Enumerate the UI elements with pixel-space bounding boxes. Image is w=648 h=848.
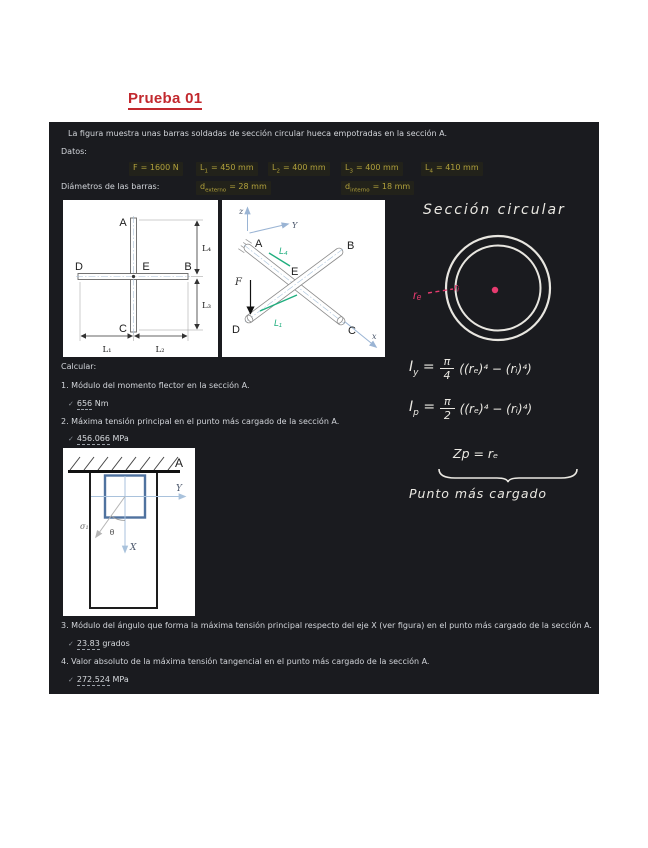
check-icon: ✓ — [68, 640, 74, 648]
answer-3: ✓23.83 grados — [68, 639, 130, 648]
problem-statement: La figura muestra unas barras soldadas d… — [68, 129, 447, 138]
inner-circle — [456, 246, 541, 331]
datos-label: Datos: — [61, 147, 87, 156]
iso-dim-l1: L₁ — [274, 318, 282, 328]
plan-dim-l2: L₂ — [155, 345, 164, 355]
calcular-label: Calcular: — [61, 362, 96, 371]
section-label-a: A — [175, 456, 183, 470]
bar-outline — [90, 471, 157, 608]
iso-axis-x: x — [372, 332, 377, 341]
notes-caption: Punto más cargado — [409, 486, 547, 501]
section-circle-sketch: rₑ rᵢ — [407, 228, 555, 350]
plan-bars — [76, 216, 190, 334]
theta-label: θ — [110, 527, 115, 537]
iso-label-a: A — [255, 238, 263, 250]
iso-label-f: F — [234, 277, 243, 288]
question-2: 2. Máxima tensión principal en el punto … — [61, 417, 339, 426]
dato-L4: L4= 410 mm — [421, 162, 483, 176]
plan-label-b: B — [184, 261, 191, 273]
question-1: 1. Módulo del momento flector en la secc… — [61, 381, 250, 390]
plan-dim-l3: L₃ — [202, 301, 211, 311]
formula-iy: Iy = π4 ((rₑ)⁴ − (rᵢ)⁴) — [409, 356, 532, 381]
iso-label-b: B — [347, 240, 354, 252]
question-4: 4. Valor absoluto de la máxima tensión t… — [61, 657, 429, 666]
diametros-label: Diámetros de las barras: — [61, 182, 159, 191]
problem-panel: La figura muestra unas barras soldadas d… — [49, 122, 599, 694]
y-axis-label: Y — [176, 484, 183, 494]
check-icon: ✓ — [68, 676, 74, 684]
formula-ip: Ip = π2 ((rₑ)⁴ − (rᵢ)⁴) — [409, 396, 532, 421]
underbrace — [433, 467, 583, 483]
question-3: 3. Módulo del ángulo que forma la máxima… — [61, 621, 592, 630]
answer-2: ✓456.066 MPa — [68, 434, 129, 443]
plan-label-e: E — [142, 261, 149, 273]
center-dot — [492, 287, 498, 293]
plan-label-d: D — [75, 261, 83, 273]
dato-d-externo: dexterno= 28 mm — [196, 181, 271, 195]
radius-dashes — [428, 289, 453, 293]
outer-circle — [446, 236, 550, 340]
notes-heading: Sección circular — [423, 202, 566, 218]
iso-axis-z: z — [238, 207, 244, 216]
answer-4: ✓272.524 MPa — [68, 675, 129, 684]
sigma1-label: σ₁ — [80, 522, 89, 531]
dato-F: F= 1600 N — [129, 162, 183, 176]
plan-label-c: C — [119, 323, 127, 335]
iso-label-e: E — [291, 266, 298, 278]
dato-L1: L1= 450 mm — [196, 162, 258, 176]
plan-dim-l4: L₄ — [202, 244, 212, 254]
re-label: rₑ — [413, 288, 422, 302]
plan-dim-l1: L₁ — [102, 345, 111, 355]
figure-isometric-view: z Y x L₄ L — [222, 200, 385, 357]
dato-L3: L3= 400 mm — [341, 162, 403, 176]
iso-dim-l4: L₄ — [279, 246, 288, 256]
ri-label: rᵢ — [454, 282, 460, 294]
answer-1: ✓656 Nm — [68, 399, 108, 408]
check-icon: ✓ — [68, 400, 74, 408]
dato-d-interno: dinterno= 18 mm — [341, 181, 414, 195]
figure-plan-view: A D E B C L₄ L₃ L₁ L₂ — [63, 200, 218, 357]
figure-section-diagram: A Y X σ₁ θ — [63, 448, 195, 616]
iso-label-c: C — [348, 325, 356, 337]
x-axis-label: X — [129, 543, 137, 553]
page-title: Prueba 01 — [128, 90, 202, 110]
iso-axis-y: Y — [292, 221, 298, 230]
plan-label-a: A — [119, 217, 127, 229]
zp-equation: Zp = rₑ — [453, 446, 498, 461]
check-icon: ✓ — [68, 435, 74, 443]
dato-L2: L2= 400 mm — [268, 162, 330, 176]
iso-label-d: D — [232, 324, 240, 336]
